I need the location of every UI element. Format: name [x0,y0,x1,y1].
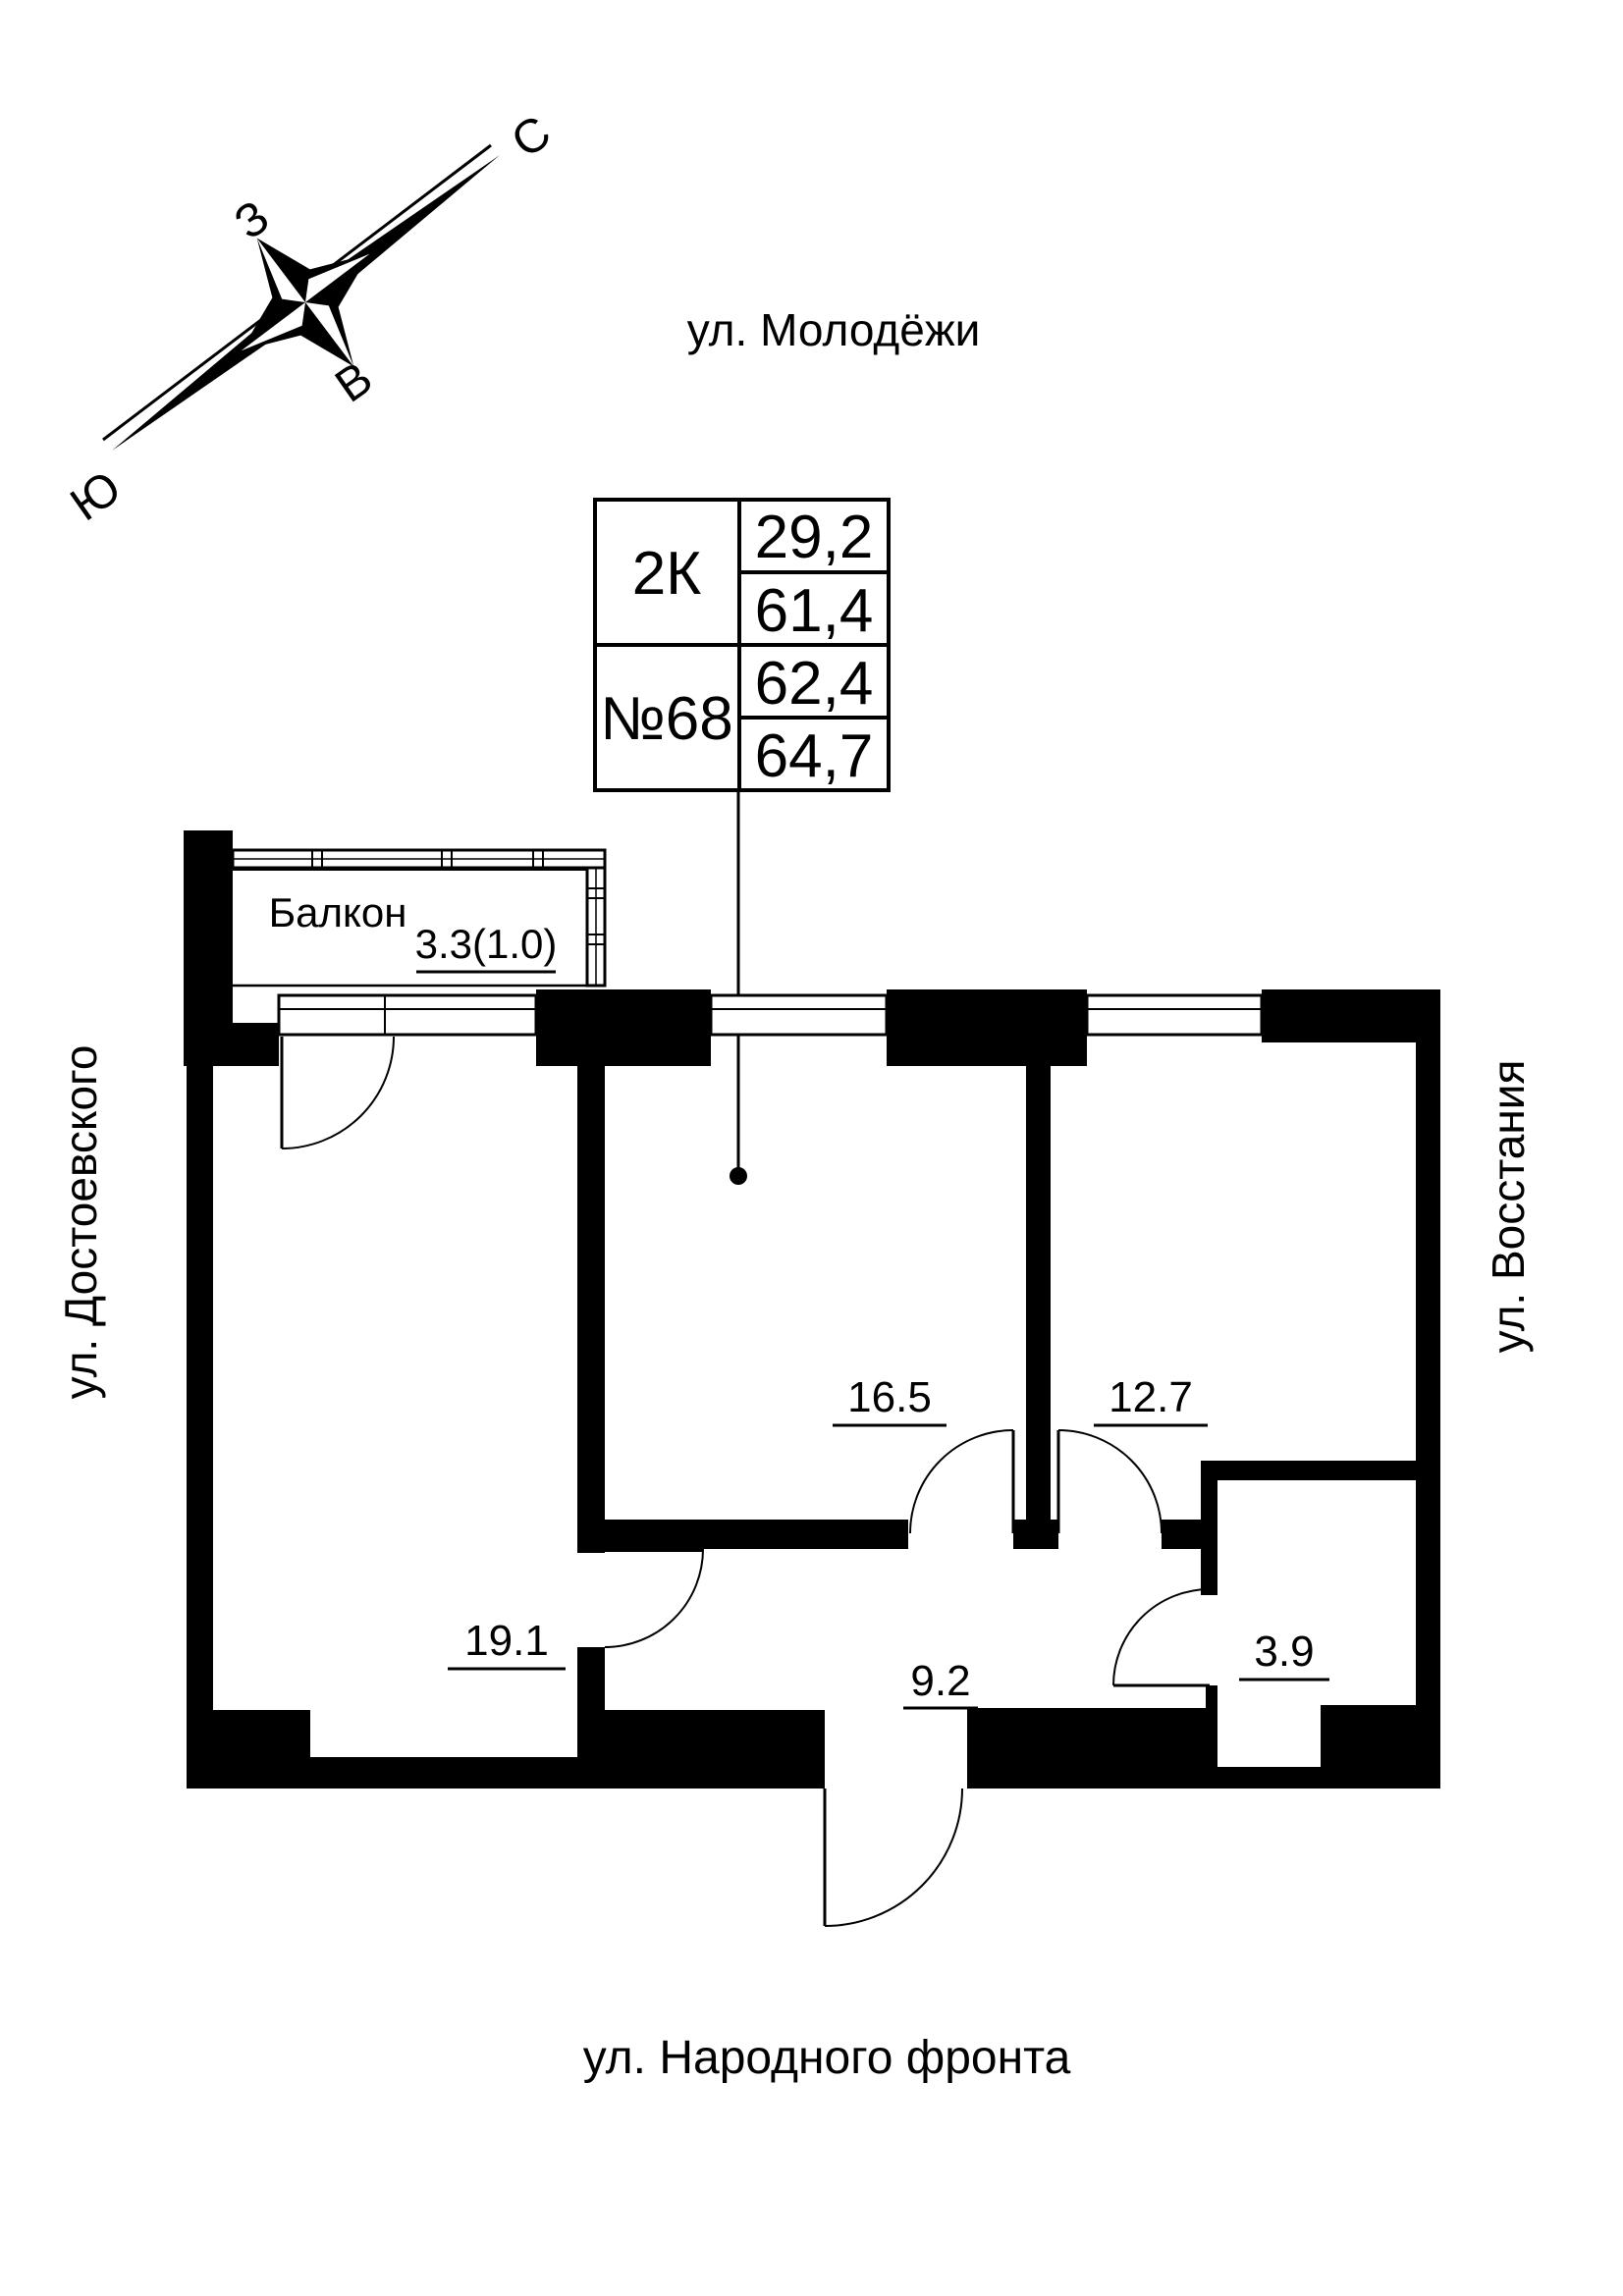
unit-number: №68 [600,685,732,753]
wall-pier-bottom-left [187,1710,310,1757]
wall-hall-north-right [1162,1520,1201,1549]
balcony-area: 3.3(1.0) [415,921,558,967]
wall-bathroom-left [1201,1461,1217,1595]
balcony-window [279,995,536,1035]
wall-bottom-right-segment [967,1767,1440,1789]
wall-bathroom-top [1201,1461,1416,1480]
window-room-16-5 [711,995,887,1035]
floorplan-drawing: С З В Ю ул. Молодёжи ул. Достоевского ул… [0,0,1623,2296]
street-label-left: ул. Достоевского [55,1045,106,1400]
room-19-1-area: 19.1 [464,1617,549,1665]
wall-bottom-left-segment [187,1757,825,1789]
floorplan-page: С З В Ю ул. Молодёжи ул. Достоевского ул… [0,0,1623,2296]
room-12-7-area: 12.7 [1109,1373,1193,1421]
wall-bottom-step [577,1710,825,1757]
wall-partition-19-1 [577,1066,605,1553]
street-label-bottom: ул. Народного фронта [583,2032,1071,2084]
wall-pier-balcony-left [184,830,233,1066]
leader-dot [730,1167,747,1185]
area-value-3: 62,4 [755,650,874,718]
area-value-2: 61,4 [755,577,874,645]
area-value-1: 29,2 [755,504,874,571]
wall-left-outer [187,1066,213,1789]
windows [279,995,1262,1035]
wall-partition-central [1026,1066,1051,1520]
wall-pier-top-3 [887,989,1087,1066]
balcony-label: Балкон [269,889,407,935]
area-value-4: 64,7 [755,722,874,790]
street-label-top: ул. Молодёжи [687,304,981,355]
bathroom-area: 3.9 [1254,1628,1314,1676]
window-room-12-7 [1087,995,1262,1035]
wall-pier-top-right-corner [1262,989,1440,1042]
hallway-area: 9.2 [910,1657,970,1705]
wall-hall-southeast-block [967,1708,1217,1767]
wall-right-outer [1416,1042,1440,1789]
wall-central-stub [1013,1520,1058,1549]
wall-bathroom-south-block [1321,1705,1416,1767]
unit-type: 2К [632,540,702,608]
wall-hall-north-left [605,1520,908,1549]
wall-partition-19-1-lower [577,1647,605,1710]
wall-pier-top-2 [536,989,711,1066]
street-label-right: ул. Восстания [1483,1060,1534,1354]
wall-jamb [233,1023,279,1066]
room-16-5-area: 16.5 [847,1373,932,1421]
